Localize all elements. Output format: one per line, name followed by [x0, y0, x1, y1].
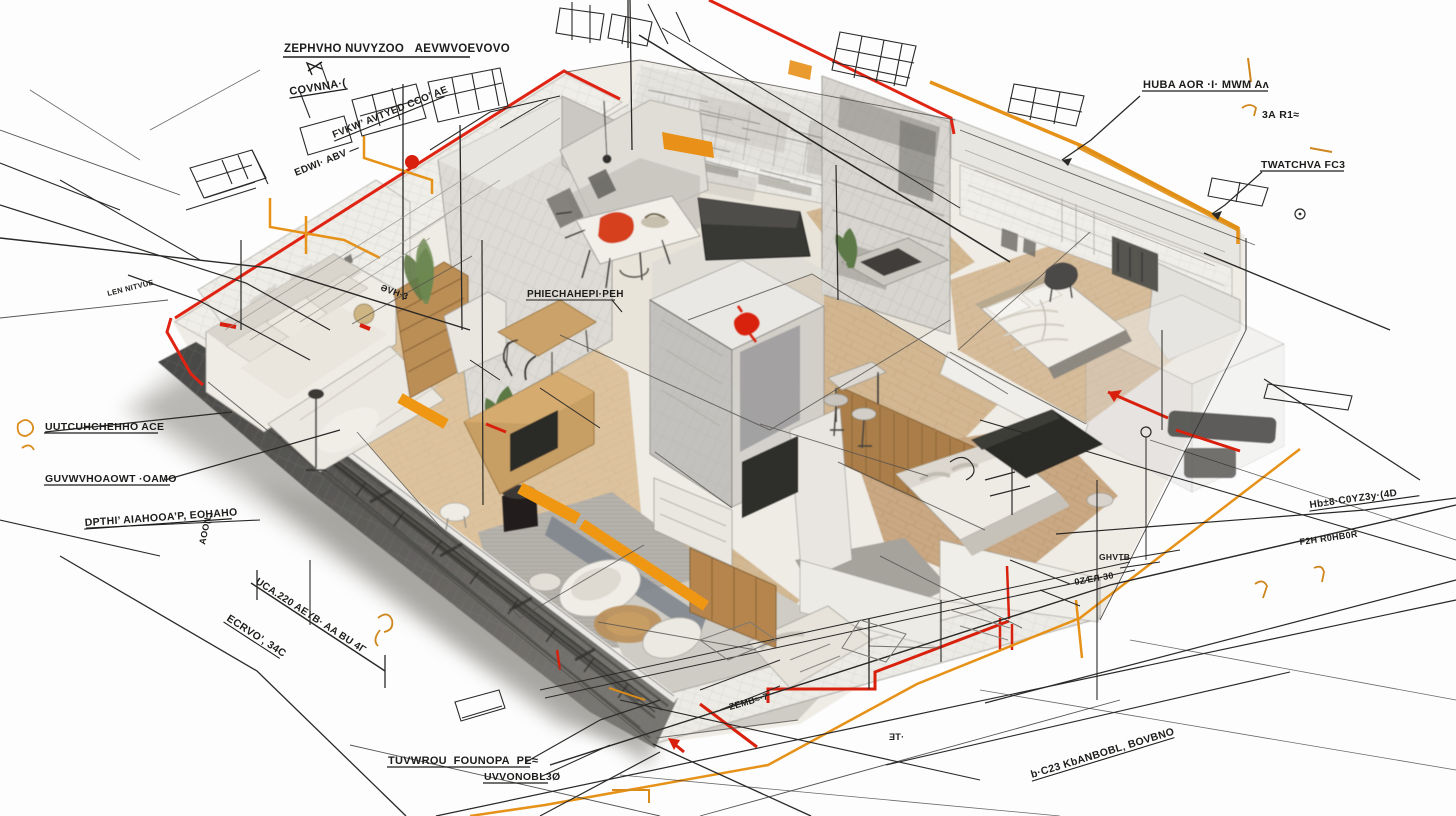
- svg-text:3A R1≈: 3A R1≈: [1262, 109, 1299, 121]
- svg-text:ƎT·: ƎT·: [889, 732, 904, 742]
- svg-text:UUTCUHCHEHHO ACE: UUTCUHCHEHHO ACE: [45, 421, 164, 433]
- svg-text:ZEPHVHO NUVYZOO AEVWVOEVOVO: ZEPHVHO NUVYZOO AEVWVOEVOVO: [284, 43, 510, 55]
- svg-text:GUVWVHOAOWT ·OAMO: GUVWVHOAOWT ·OAMO: [45, 473, 177, 485]
- svg-text:TWATCHVA FC3: TWATCHVA FC3: [1261, 159, 1345, 171]
- svg-text:HUBA AOR ·I· MWM Aʌ: HUBA AOR ·I· MWM Aʌ: [1143, 79, 1270, 91]
- svg-text:PHIECHAHEPI·PEH: PHIECHAHEPI·PEH: [527, 289, 624, 300]
- svg-text:TUVWROU FOUNOPA PE≈: TUVWROU FOUNOPA PE≈: [388, 755, 538, 767]
- svg-text:UVVONOBL3Ø: UVVONOBL3Ø: [484, 771, 561, 783]
- svg-text:GHVTB: GHVTB: [1099, 552, 1130, 562]
